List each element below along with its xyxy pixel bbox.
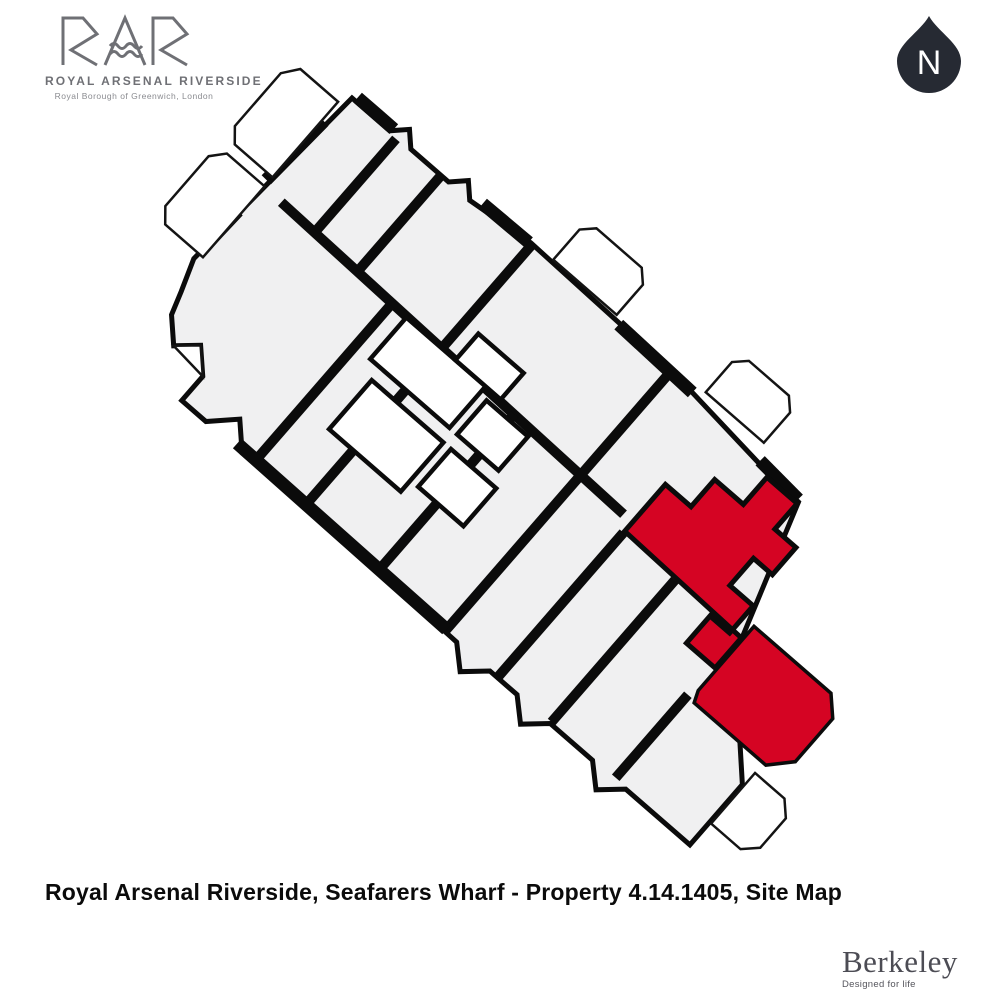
floor-plan-svg <box>0 0 1000 1000</box>
berkeley-tagline: Designed for life <box>842 979 962 990</box>
floor-plan <box>0 0 1000 1000</box>
page-caption: Royal Arsenal Riverside, Seafarers Wharf… <box>45 879 842 906</box>
berkeley-logo: Berkeley Designed for life <box>842 946 962 990</box>
berkeley-name: Berkeley <box>842 946 962 977</box>
